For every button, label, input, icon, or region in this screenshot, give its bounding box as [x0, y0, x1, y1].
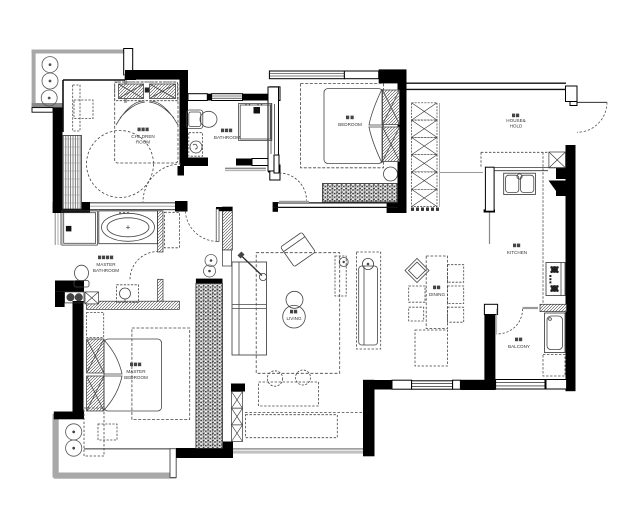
svg-text:ROOM: ROOM [136, 140, 150, 145]
svg-text:BEDROOM: BEDROOM [124, 375, 148, 380]
svg-text:MASTER: MASTER [96, 262, 116, 267]
svg-text:CHILDREN: CHILDREN [131, 134, 154, 139]
svg-text:BATHROOM: BATHROOM [214, 135, 240, 140]
svg-text:HOUSE&: HOUSE& [506, 118, 525, 123]
svg-text:LIVING: LIVING [286, 316, 301, 321]
svg-text:BATHROOM: BATHROOM [93, 268, 119, 273]
svg-text:HOLD: HOLD [510, 124, 523, 129]
svg-text:BALCONY: BALCONY [508, 344, 530, 349]
svg-text:KITCHEN: KITCHEN [507, 250, 527, 255]
svg-text:DINING: DINING [429, 292, 446, 297]
svg-text:MASTER: MASTER [126, 369, 146, 374]
svg-text:BEDROOM: BEDROOM [338, 122, 362, 127]
